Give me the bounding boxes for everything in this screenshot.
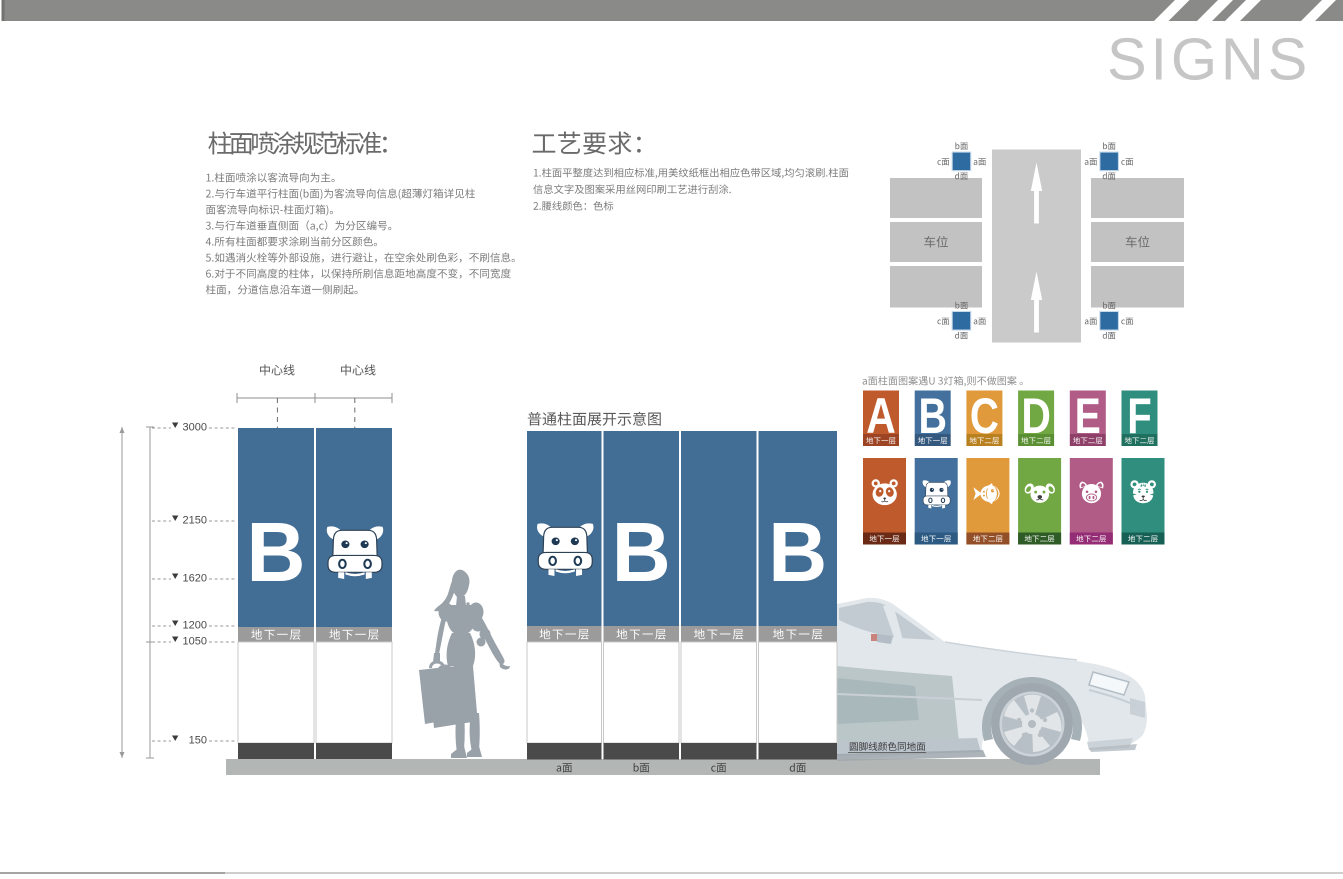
- svg-text:D: D: [1021, 388, 1051, 444]
- svg-text:3000: 3000: [183, 422, 207, 434]
- svg-text:B: B: [247, 505, 306, 599]
- svg-text:150: 150: [189, 735, 207, 747]
- svg-text:B: B: [768, 505, 827, 599]
- svg-text:F: F: [1127, 388, 1152, 444]
- svg-text:1200: 1200: [183, 620, 207, 632]
- svg-text:C: C: [970, 388, 999, 444]
- svg-text:B: B: [918, 388, 947, 444]
- svg-text:1620: 1620: [183, 573, 207, 585]
- svg-text:B: B: [612, 505, 671, 599]
- svg-text:E: E: [1075, 388, 1101, 444]
- svg-text:1050: 1050: [183, 636, 207, 648]
- svg-text:2150: 2150: [183, 515, 207, 527]
- svg-text:SIGNS: SIGNS: [1107, 26, 1311, 93]
- svg-text:A: A: [866, 388, 896, 444]
